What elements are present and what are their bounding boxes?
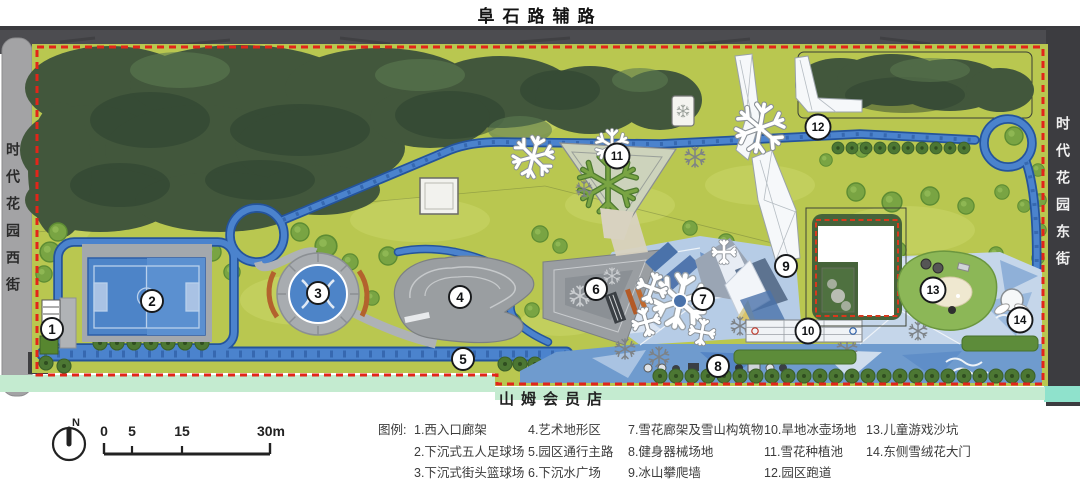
svg-text:12: 12 <box>812 122 825 134</box>
scale-bar: N 0 5 15 30m <box>40 414 340 476</box>
legend-item: 11.雪花种植池 <box>764 442 852 464</box>
legend-item: 2.下沉式五人足球场 <box>414 442 514 464</box>
legend-item: 4.艺术地形区 <box>528 420 614 442</box>
plan-marker-6: 6 <box>585 278 607 300</box>
scale-ruler: 0 5 15 30m <box>100 423 285 454</box>
scale-tick-5: 5 <box>128 423 136 439</box>
north-arrow-icon: N <box>53 417 85 460</box>
plan-marker-1: 1 <box>41 318 63 340</box>
legend-item: 6.下沉水广场 <box>528 463 614 485</box>
plan-marker-11: 11 <box>605 144 630 169</box>
legend-item: 14.东侧雪绒花大门 <box>866 442 971 464</box>
legend-item: 9.冰山攀爬墙 <box>628 463 750 485</box>
road-label-east: 时代花园东街 <box>1053 116 1073 278</box>
svg-text:6: 6 <box>592 282 600 297</box>
plan-marker-5: 5 <box>452 348 474 370</box>
plan-marker-3: 3 <box>307 282 329 304</box>
legend-item: 10.旱地冰壶场地 <box>764 420 852 442</box>
svg-text:4: 4 <box>456 290 464 305</box>
legend-item: 5.园区通行主路 <box>528 442 614 464</box>
legend-column: 4.艺术地形区5.园区通行主路6.下沉水广场 <box>528 420 614 485</box>
legend-item: 12.园区跑道 <box>764 463 852 485</box>
plan-marker-2: 2 <box>141 290 163 312</box>
plan-marker-13: 13 <box>921 278 946 303</box>
plan-marker-9: 9 <box>775 255 797 277</box>
legend-column: 10.旱地冰壶场地11.雪花种植池12.园区跑道 <box>764 420 852 485</box>
svg-text:5: 5 <box>459 352 467 367</box>
svg-text:13: 13 <box>927 285 940 297</box>
legend-item: 3.下沉式街头篮球场 <box>414 463 514 485</box>
svg-text:1: 1 <box>48 322 56 337</box>
road-label-west: 时代花园西街 <box>3 142 23 304</box>
scale-tick-0: 0 <box>100 423 108 439</box>
legend-column: 13.儿童游戏沙坑14.东侧雪绒花大门 <box>866 420 971 485</box>
plan-marker-10: 10 <box>796 319 821 344</box>
svg-text:9: 9 <box>782 259 790 274</box>
north-label: N <box>72 417 80 429</box>
legend-item: 8.健身器械场地 <box>628 442 750 464</box>
legend-title: 图例: <box>378 420 414 442</box>
road-label-top: 阜石路辅路 <box>0 2 1080 27</box>
plan-marker-14: 14 <box>1008 308 1033 333</box>
legend-item: 1.西入口廊架 <box>414 420 514 442</box>
plan-marker-12: 12 <box>806 115 831 140</box>
scale-tick-15: 15 <box>174 423 190 439</box>
svg-text:8: 8 <box>714 359 722 374</box>
legend-columns: 1.西入口廊架2.下沉式五人足球场3.下沉式街头篮球场4.艺术地形区5.园区通行… <box>414 420 985 485</box>
scale-tick-30m: 30m <box>257 423 285 439</box>
svg-text:14: 14 <box>1014 315 1027 327</box>
legend-item: 13.儿童游戏沙坑 <box>866 420 971 442</box>
site-plan-page: 1234567891011121314 阜石路辅路 时代花园西街 时代花园东街 … <box>0 0 1080 486</box>
legend: 图例: 1.西入口廊架2.下沉式五人足球场3.下沉式街头篮球场4.艺术地形区5.… <box>378 420 985 485</box>
svg-text:10: 10 <box>802 326 815 338</box>
plan-marker-4: 4 <box>449 286 471 308</box>
svg-text:3: 3 <box>314 286 322 301</box>
existing-building <box>806 208 906 326</box>
svg-text:2: 2 <box>148 294 156 309</box>
svg-text:7: 7 <box>699 292 707 307</box>
plan-marker-8: 8 <box>707 355 729 377</box>
legend-column: 1.西入口廊架2.下沉式五人足球场3.下沉式街头篮球场 <box>414 420 514 485</box>
plan-marker-7: 7 <box>692 288 714 310</box>
legend-column: 7.雪花廊架及雪山构筑物8.健身器械场地9.冰山攀爬墙 <box>628 420 750 485</box>
legend-item: 7.雪花廊架及雪山构筑物 <box>628 420 750 442</box>
svg-text:11: 11 <box>611 151 624 163</box>
store-label-bottom: 山姆会员店 <box>0 388 1080 409</box>
